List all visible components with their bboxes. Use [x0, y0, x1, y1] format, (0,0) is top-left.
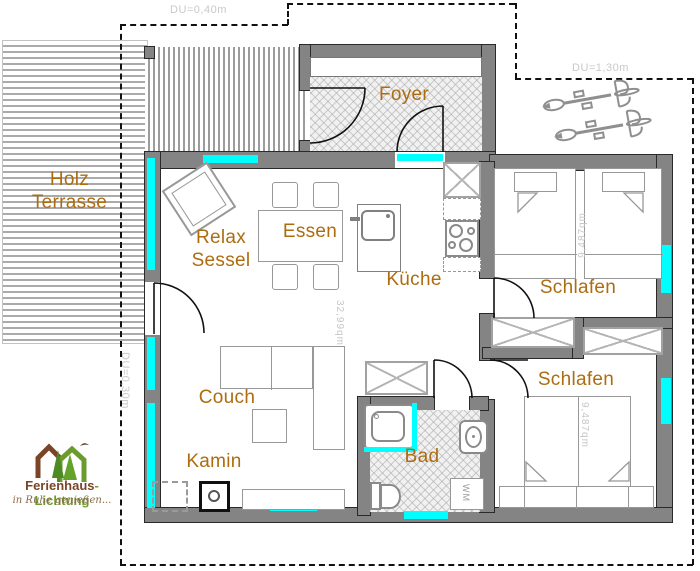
logo-icon: [38, 443, 89, 482]
room-label-bedroom-top: Schlafen: [533, 276, 623, 299]
bird-icon: [80, 443, 89, 446]
room-label-terrace: Holz Terrasse: [12, 168, 127, 214]
bicycle-icon: [540, 77, 641, 120]
room-label-bedroom-bottom: Schlafen: [531, 368, 621, 391]
room-label-relax: Relax Sessel: [178, 226, 264, 272]
area-label-bedroom-bottom: 9,487qm: [579, 402, 590, 448]
brand-part-brown: Ferienhaus: [25, 478, 94, 493]
area-label-living: 32,99qm: [334, 300, 345, 346]
room-label-foyer: Foyer: [368, 83, 440, 106]
area-label-bedroom-top: 9,487qm: [577, 212, 588, 258]
room-label-bath: Bad: [399, 445, 445, 468]
room-label-dining: Essen: [274, 220, 346, 243]
bicycle-icon: [552, 107, 653, 150]
room-label-fireplace: Kamin: [181, 450, 247, 473]
room-label-couch: Couch: [193, 386, 261, 409]
floor-plan: DU=0,40m DU=1,30m DU=0,30m: [0, 0, 700, 571]
brand-tagline: in Ruhe genießen...: [2, 495, 122, 506]
room-label-kitchen: Küche: [383, 268, 445, 291]
